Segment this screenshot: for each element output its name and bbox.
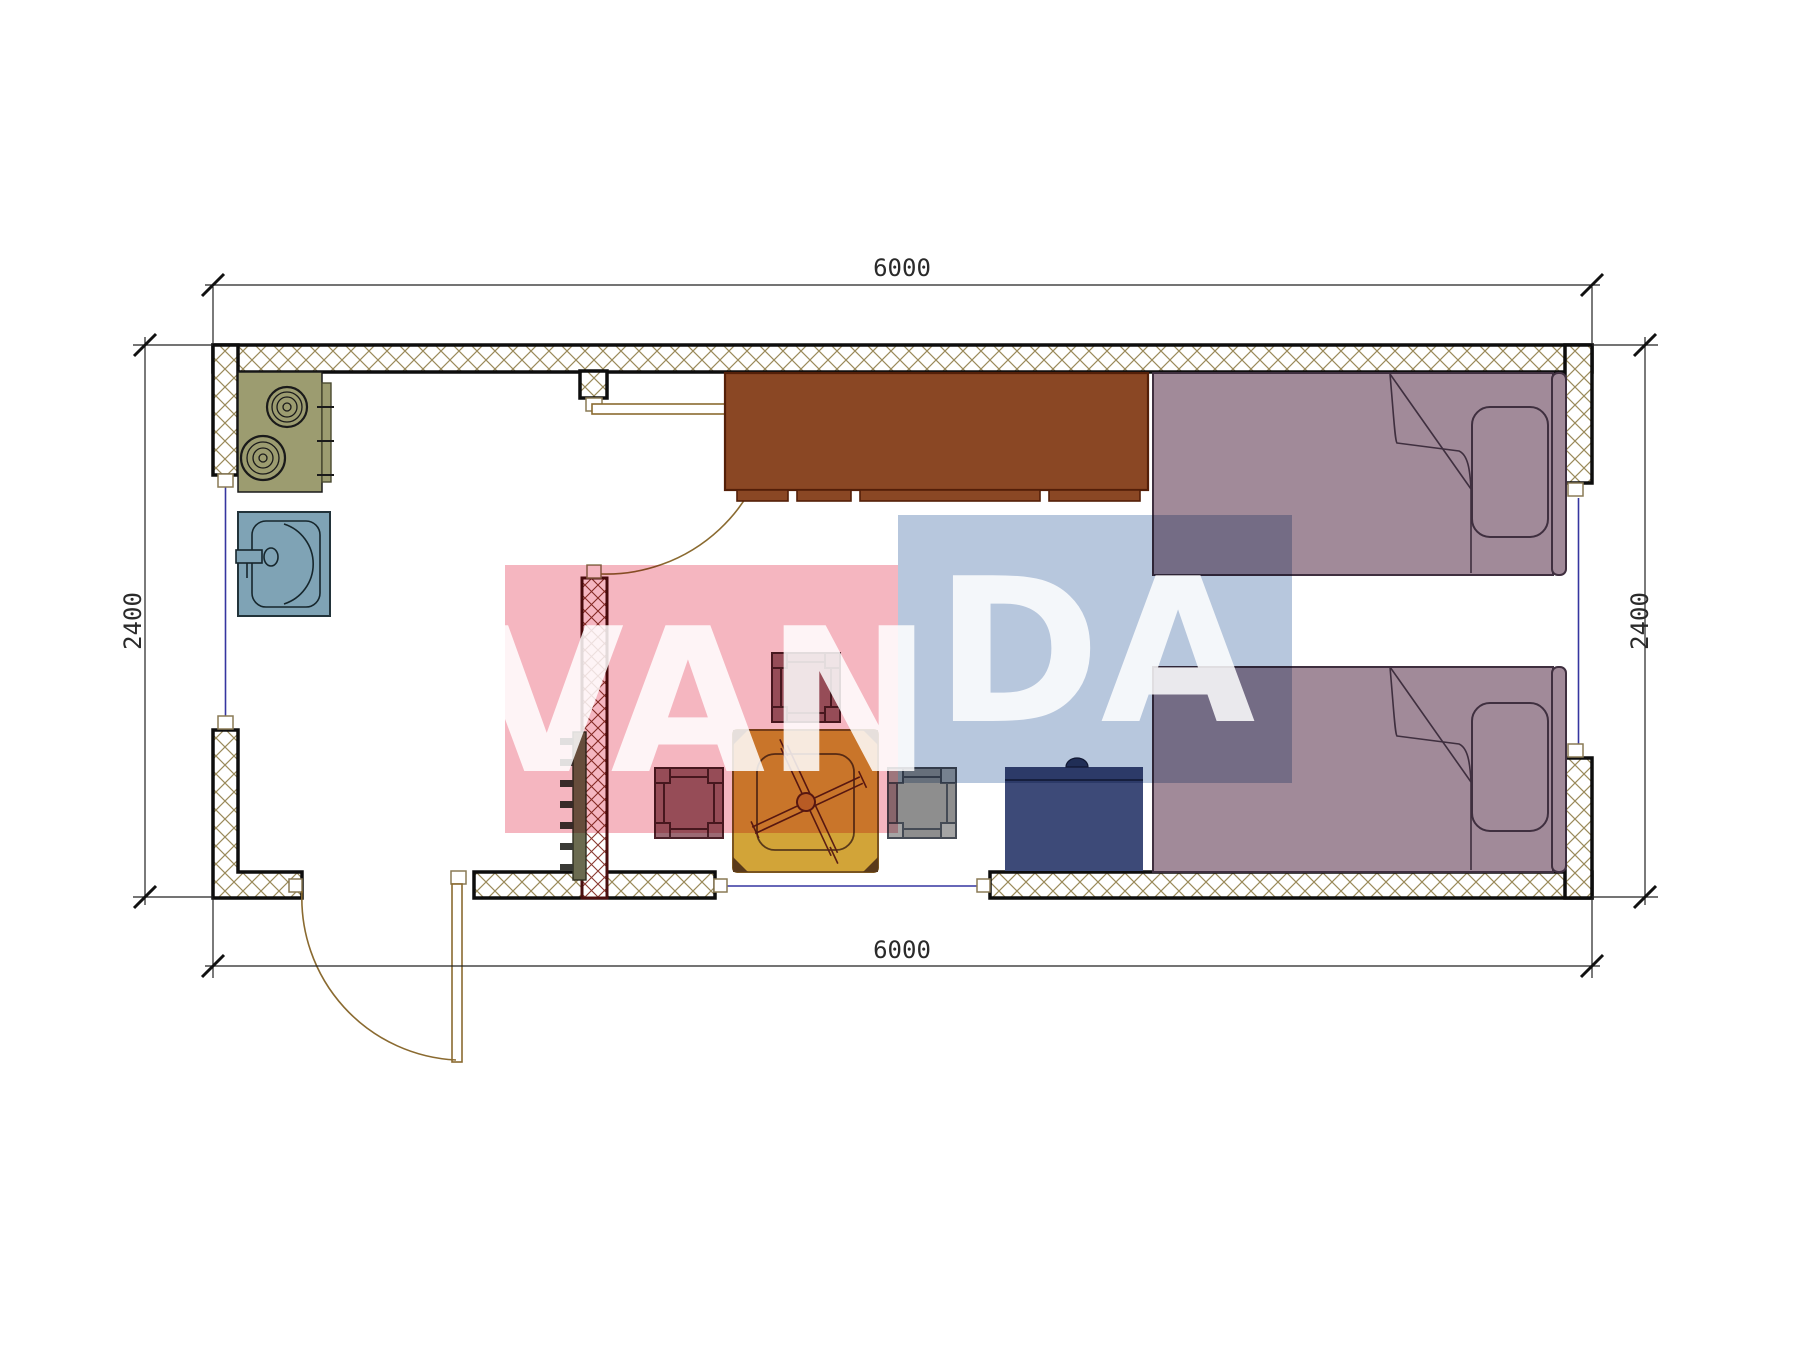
pillow (1472, 407, 1548, 537)
jamb-cap (977, 879, 990, 892)
dim-label-bottom: 6000 (873, 936, 931, 964)
wardrobe-base (737, 490, 1140, 501)
top-extension-lines (213, 287, 1592, 343)
watermark-text-van: VAN (469, 586, 932, 819)
bottom-wall-right-segment (990, 872, 1592, 898)
faucet-knob (264, 548, 278, 566)
door-hinge-cap (451, 871, 466, 884)
pillow (1472, 703, 1548, 831)
jamb-cap (218, 474, 233, 487)
watermark-text-da: DA (935, 536, 1256, 769)
left-wall-lower-L (213, 730, 302, 898)
jamb-cap (714, 879, 727, 892)
floor-plan-page: 6000 6000 2400 2400 VAN DA (0, 0, 1800, 1350)
jamb-cap (218, 716, 233, 729)
entry-door-leaf (452, 884, 462, 1062)
dim-label-left: 2400 (119, 592, 147, 650)
counter-strip (322, 383, 331, 482)
faucet-icon (236, 550, 262, 563)
door-jamb-stub (580, 371, 607, 398)
wardrobe-body (725, 373, 1148, 490)
entry-door (302, 884, 462, 1062)
sink (236, 512, 330, 616)
entry-door-swing-arc (302, 891, 456, 1060)
jamb-cap (1568, 744, 1583, 757)
dim-label-right: 2400 (1626, 592, 1654, 650)
door-jamb-cap (289, 879, 302, 892)
right-wall-upper (1565, 345, 1592, 483)
right-wall-lower (1565, 758, 1592, 898)
bed-headboard (1552, 373, 1566, 575)
stove-body (238, 372, 322, 492)
left-wall-upper (213, 345, 238, 475)
wardrobe (725, 373, 1148, 501)
jamb-cap (1568, 483, 1583, 496)
bed-headboard (1552, 667, 1566, 872)
floor-plan-drawing: 6000 6000 2400 2400 VAN DA (0, 0, 1800, 1350)
dim-label-top: 6000 (873, 254, 931, 282)
top-wall (213, 345, 1592, 372)
stove (238, 372, 334, 492)
